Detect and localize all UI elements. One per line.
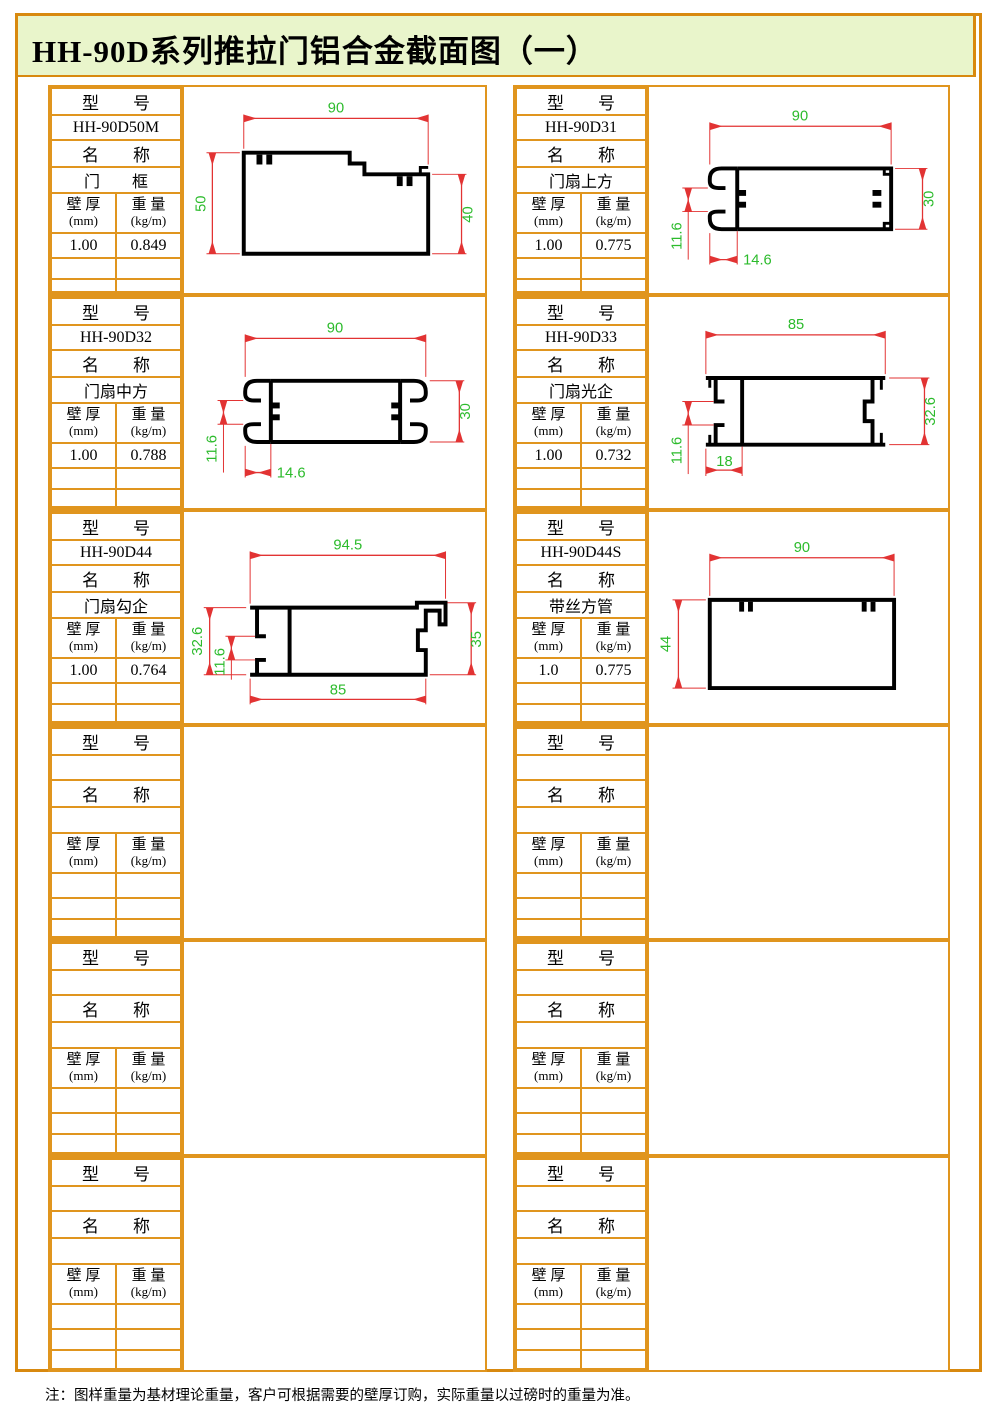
dim-left-label: 32.6 bbox=[190, 627, 206, 656]
model-value: HH-90D31 bbox=[516, 115, 646, 140]
cell-hh-90d33: 型 号 HH-90D33 名 称 门扇光企 壁 厚(mm) 重 量(kg/m) … bbox=[513, 295, 950, 510]
drawing-area-empty bbox=[182, 942, 485, 1154]
dim-bottom-label: 18 bbox=[716, 454, 732, 470]
dim-inner-left-label: 11.6 bbox=[669, 222, 685, 249]
spec-table: 型 号 名 称 壁 厚(mm) 重 量(kg/m) bbox=[50, 942, 182, 1154]
thickness-value: 1.00 bbox=[51, 443, 116, 468]
model-value: HH-90D33 bbox=[516, 325, 646, 350]
dim-inner-left-label: 11.6 bbox=[205, 435, 221, 463]
spec-table: 型 号 HH-90D33 名 称 门扇光企 壁 厚(mm) 重 量(kg/m) … bbox=[515, 297, 647, 508]
cell-hh-90d50m: 型 号 HH-90D50M 名 称 门 框 壁 厚(mm) 重 量(kg/m) … bbox=[48, 85, 487, 295]
drawing-area: 85 32.6 11.6 18 bbox=[647, 297, 948, 508]
drawing-area-empty bbox=[647, 942, 948, 1154]
dim-top-label: 90 bbox=[794, 540, 810, 556]
weight-value: 0.732 bbox=[581, 443, 646, 468]
drawing-area: 90 50 40 bbox=[182, 87, 485, 293]
dim-left-label: 50 bbox=[194, 196, 210, 212]
spec-table: 型 号 HH-90D32 名 称 门扇中方 壁 厚(mm) 重 量(kg/m) … bbox=[50, 297, 182, 508]
dim-right-label: 40 bbox=[460, 206, 476, 222]
cell-empty: 型 号 名 称 壁 厚(mm) 重 量(kg/m) bbox=[48, 940, 487, 1156]
cell-hh-90d44s: 型 号 HH-90D44S 名 称 带丝方管 壁 厚(mm) 重 量(kg/m)… bbox=[513, 510, 950, 725]
thickness-value: 1.00 bbox=[51, 233, 116, 258]
weight-value: 0.775 bbox=[581, 233, 646, 258]
name-value: 门扇光企 bbox=[516, 377, 646, 403]
weight-value: 0.764 bbox=[116, 658, 181, 683]
cell-empty: 型 号 名 称 壁 厚(mm) 重 量(kg/m) bbox=[48, 1156, 487, 1372]
section-drawing-door-leaf-hook-stile: 94.5 35 32.6 11.6 85 bbox=[184, 512, 485, 723]
drawing-area: 90 30 11.6 14.6 bbox=[647, 87, 948, 293]
cell-hh-90d44: 型 号 HH-90D44 名 称 门扇勾企 壁 厚(mm) 重 量(kg/m) … bbox=[48, 510, 487, 725]
drawing-area: 90 30 11.6 14.6 bbox=[182, 297, 485, 508]
page-title: HH-90D系列推拉门铝合金截面图（一） bbox=[18, 16, 973, 71]
drawing-area: 94.5 35 32.6 11.6 85 bbox=[182, 512, 485, 723]
name-value: 门 框 bbox=[51, 167, 181, 193]
section-drawing-square-tube: 90 44 bbox=[649, 512, 948, 723]
weight-label: 重 量(kg/m) bbox=[116, 193, 181, 233]
name-value: 门扇上方 bbox=[516, 167, 646, 193]
name-value: 门扇勾企 bbox=[51, 592, 181, 618]
cell-hh-90d32: 型 号 HH-90D32 名 称 门扇中方 壁 厚(mm) 重 量(kg/m) … bbox=[48, 295, 487, 510]
thickness-value: 1.00 bbox=[516, 443, 581, 468]
name-value: 带丝方管 bbox=[516, 592, 646, 618]
dim-top-label: 90 bbox=[328, 101, 344, 117]
name-label: 名 称 bbox=[51, 140, 181, 167]
cell-empty: 型 号 名 称 壁 厚(mm) 重 量(kg/m) bbox=[513, 1156, 950, 1372]
cell-empty: 型 号 名 称 壁 厚(mm) 重 量(kg/m) bbox=[513, 725, 950, 940]
dim-bottom-label: 85 bbox=[330, 682, 346, 698]
spec-table: 型 号 名 称 壁 厚(mm) 重 量(kg/m) bbox=[515, 1158, 647, 1370]
thickness-value: 1.00 bbox=[516, 233, 581, 258]
spec-table: 型 号 名 称 壁 厚(mm) 重 量(kg/m) bbox=[50, 727, 182, 938]
name-value: 门扇中方 bbox=[51, 377, 181, 403]
dim-right-label: 30 bbox=[458, 403, 474, 419]
cell-empty: 型 号 名 称 壁 厚(mm) 重 量(kg/m) bbox=[48, 725, 487, 940]
section-drawing-door-frame: 90 50 40 bbox=[184, 87, 485, 293]
spec-table: 型 号 HH-90D44 名 称 门扇勾企 壁 厚(mm) 重 量(kg/m) … bbox=[50, 512, 182, 723]
cell-hh-90d31: 型 号 HH-90D31 名 称 门扇上方 壁 厚(mm) 重 量(kg/m) … bbox=[513, 85, 950, 295]
model-value: HH-90D32 bbox=[51, 325, 181, 350]
spec-table: 型 号 名 称 壁 厚(mm) 重 量(kg/m) bbox=[50, 1158, 182, 1370]
drawing-area-empty bbox=[647, 727, 948, 938]
weight-value: 0.775 bbox=[581, 658, 646, 683]
thickness-value: 1.00 bbox=[51, 658, 116, 683]
drawing-area-empty bbox=[182, 727, 485, 938]
section-drawing-door-leaf-top: 90 30 11.6 14.6 bbox=[649, 87, 948, 293]
dim-inner-left-label: 11.6 bbox=[669, 437, 685, 465]
thickness-label: 壁 厚(mm) bbox=[51, 193, 116, 233]
spec-table: 型 号 HH-90D44S 名 称 带丝方管 壁 厚(mm) 重 量(kg/m)… bbox=[515, 512, 647, 723]
model-value: HH-90D44 bbox=[51, 540, 181, 565]
spec-table: 型 号 HH-90D31 名 称 门扇上方 壁 厚(mm) 重 量(kg/m) … bbox=[515, 87, 647, 293]
dim-bottom-label: 14.6 bbox=[277, 466, 306, 482]
spec-table: 型 号 HH-90D50M 名 称 门 框 壁 厚(mm) 重 量(kg/m) … bbox=[50, 87, 182, 293]
drawing-area-empty bbox=[647, 1158, 948, 1370]
dim-right-label: 35 bbox=[469, 631, 485, 647]
dim-right-label: 30 bbox=[921, 191, 937, 207]
dim-top-label: 90 bbox=[327, 320, 343, 336]
drawing-area: 90 44 bbox=[647, 512, 948, 723]
section-drawing-door-leaf-plain-stile: 85 32.6 11.6 18 bbox=[649, 297, 948, 508]
cell-empty: 型 号 名 称 壁 厚(mm) 重 量(kg/m) bbox=[513, 940, 950, 1156]
title-band: HH-90D系列推拉门铝合金截面图（一） bbox=[15, 13, 976, 77]
thickness-value: 1.0 bbox=[516, 658, 581, 683]
dim-top-label: 90 bbox=[792, 108, 808, 124]
model-value: HH-90D50M bbox=[51, 115, 181, 140]
drawing-area-empty bbox=[182, 1158, 485, 1370]
spec-table: 型 号 名 称 壁 厚(mm) 重 量(kg/m) bbox=[515, 942, 647, 1154]
weight-value: 0.849 bbox=[116, 233, 181, 258]
weight-value: 0.788 bbox=[116, 443, 181, 468]
dim-left-label: 44 bbox=[659, 636, 675, 652]
dim-bottom-label: 14.6 bbox=[743, 253, 772, 269]
model-label: 型 号 bbox=[51, 88, 181, 115]
section-drawing-door-leaf-middle: 90 30 11.6 14.6 bbox=[184, 297, 485, 508]
dim-top-label: 94.5 bbox=[333, 537, 362, 553]
catalog-page: HH-90D系列推拉门铝合金截面图（一） 型 号 HH-90D50M 名 称 门… bbox=[0, 0, 1000, 1415]
dim-inner-left-label: 11.6 bbox=[212, 648, 228, 676]
dim-top-label: 85 bbox=[788, 317, 804, 333]
spec-table: 型 号 名 称 壁 厚(mm) 重 量(kg/m) bbox=[515, 727, 647, 938]
footer-note: 注：图样重量为基材理论重量，客户可根据需要的壁厚订购，实际重量以过磅时的重量为准… bbox=[45, 1384, 640, 1405]
dim-right-label: 32.6 bbox=[923, 397, 939, 426]
model-value: HH-90D44S bbox=[516, 540, 646, 565]
